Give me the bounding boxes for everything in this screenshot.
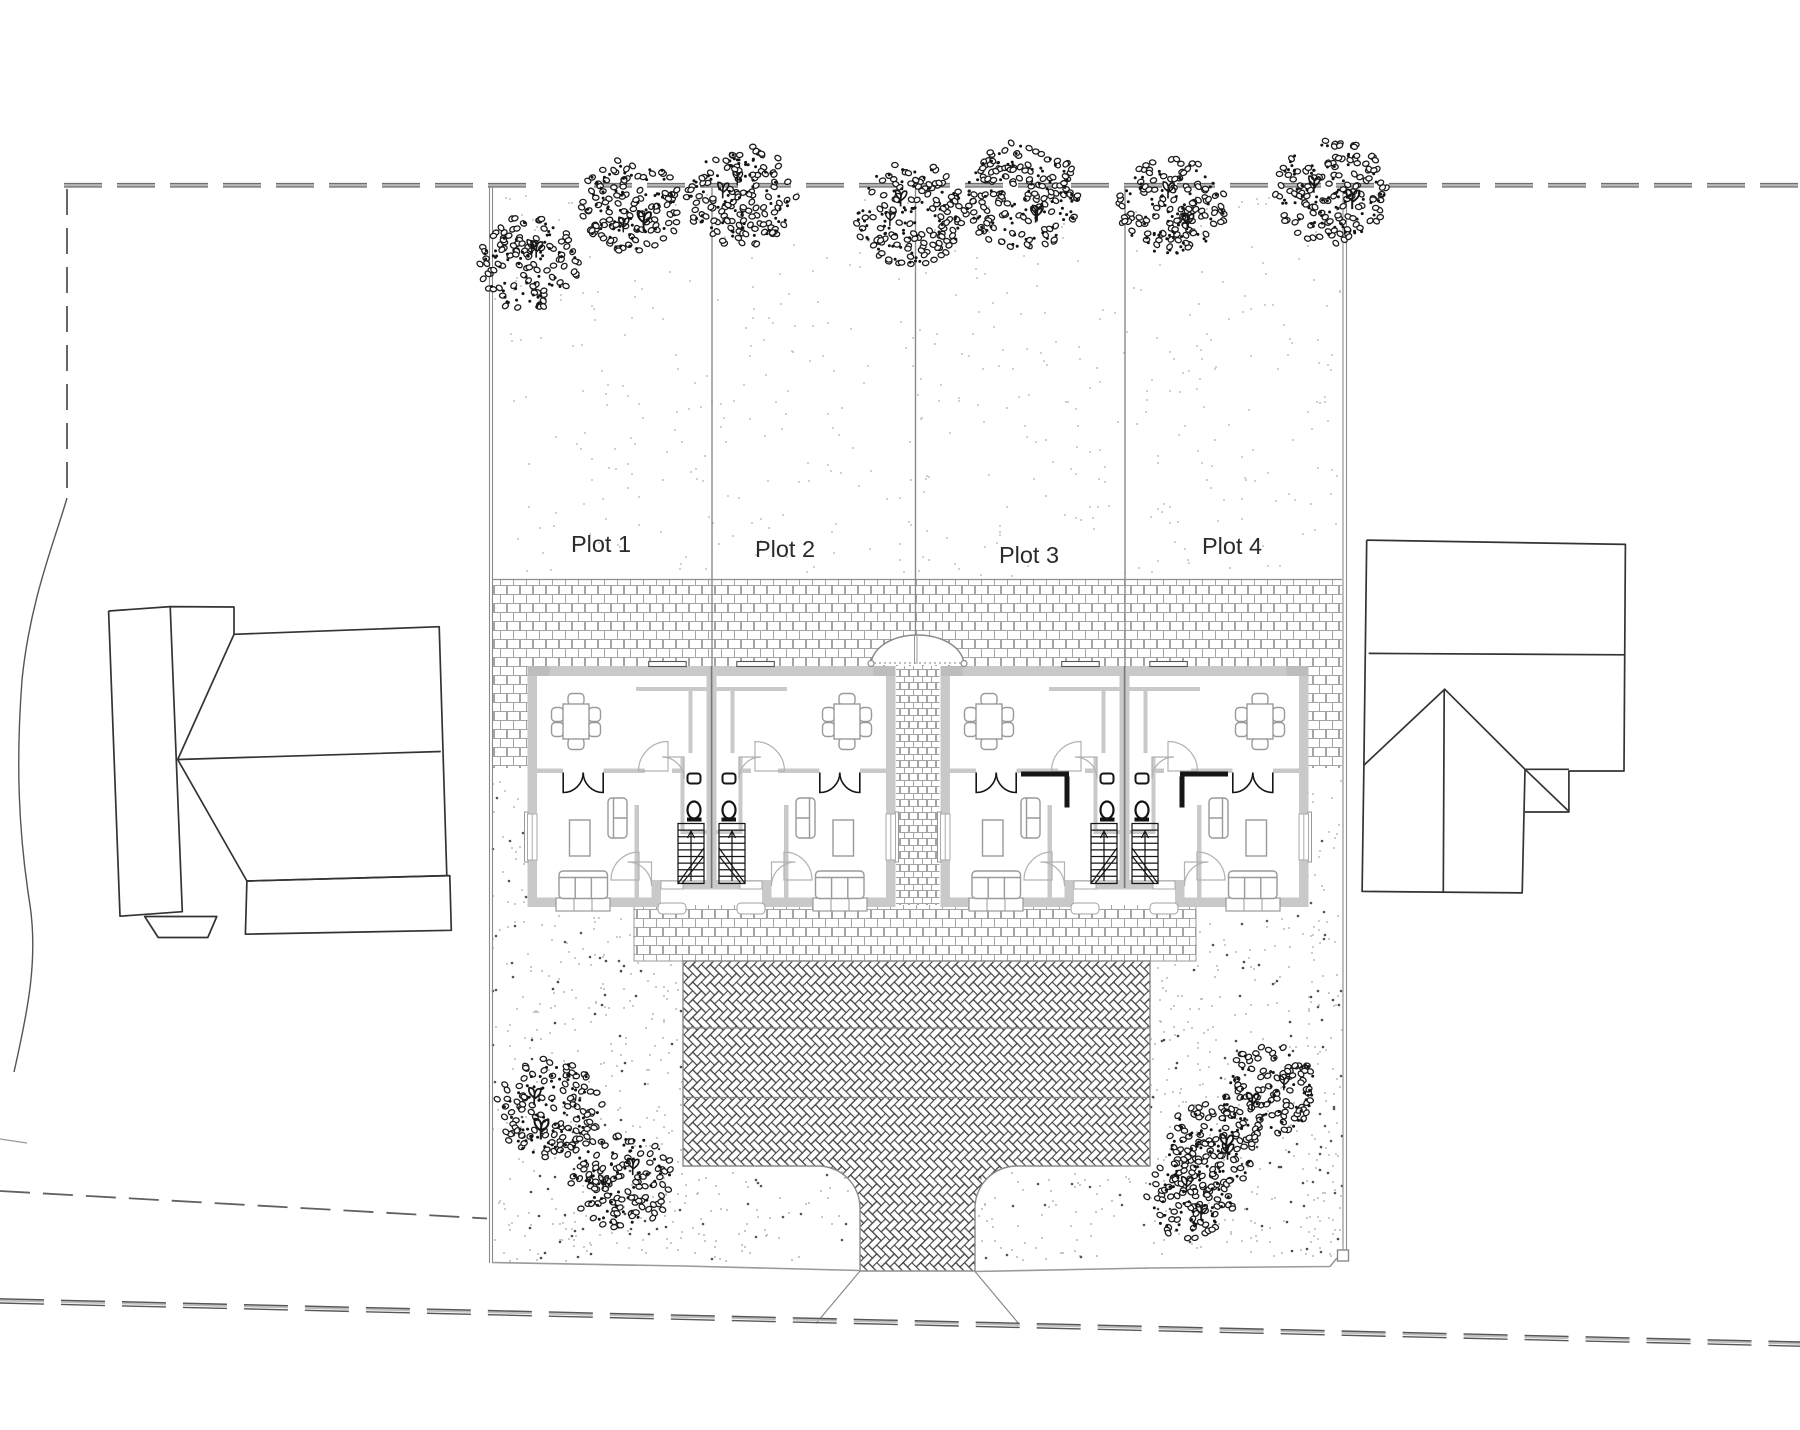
svg-text:Plot 2: Plot 2 xyxy=(755,536,815,562)
svg-text:Plot 3: Plot 3 xyxy=(999,542,1059,568)
svg-text:Plot 4: Plot 4 xyxy=(1202,533,1262,559)
svg-text:Plot 1: Plot 1 xyxy=(571,531,631,557)
